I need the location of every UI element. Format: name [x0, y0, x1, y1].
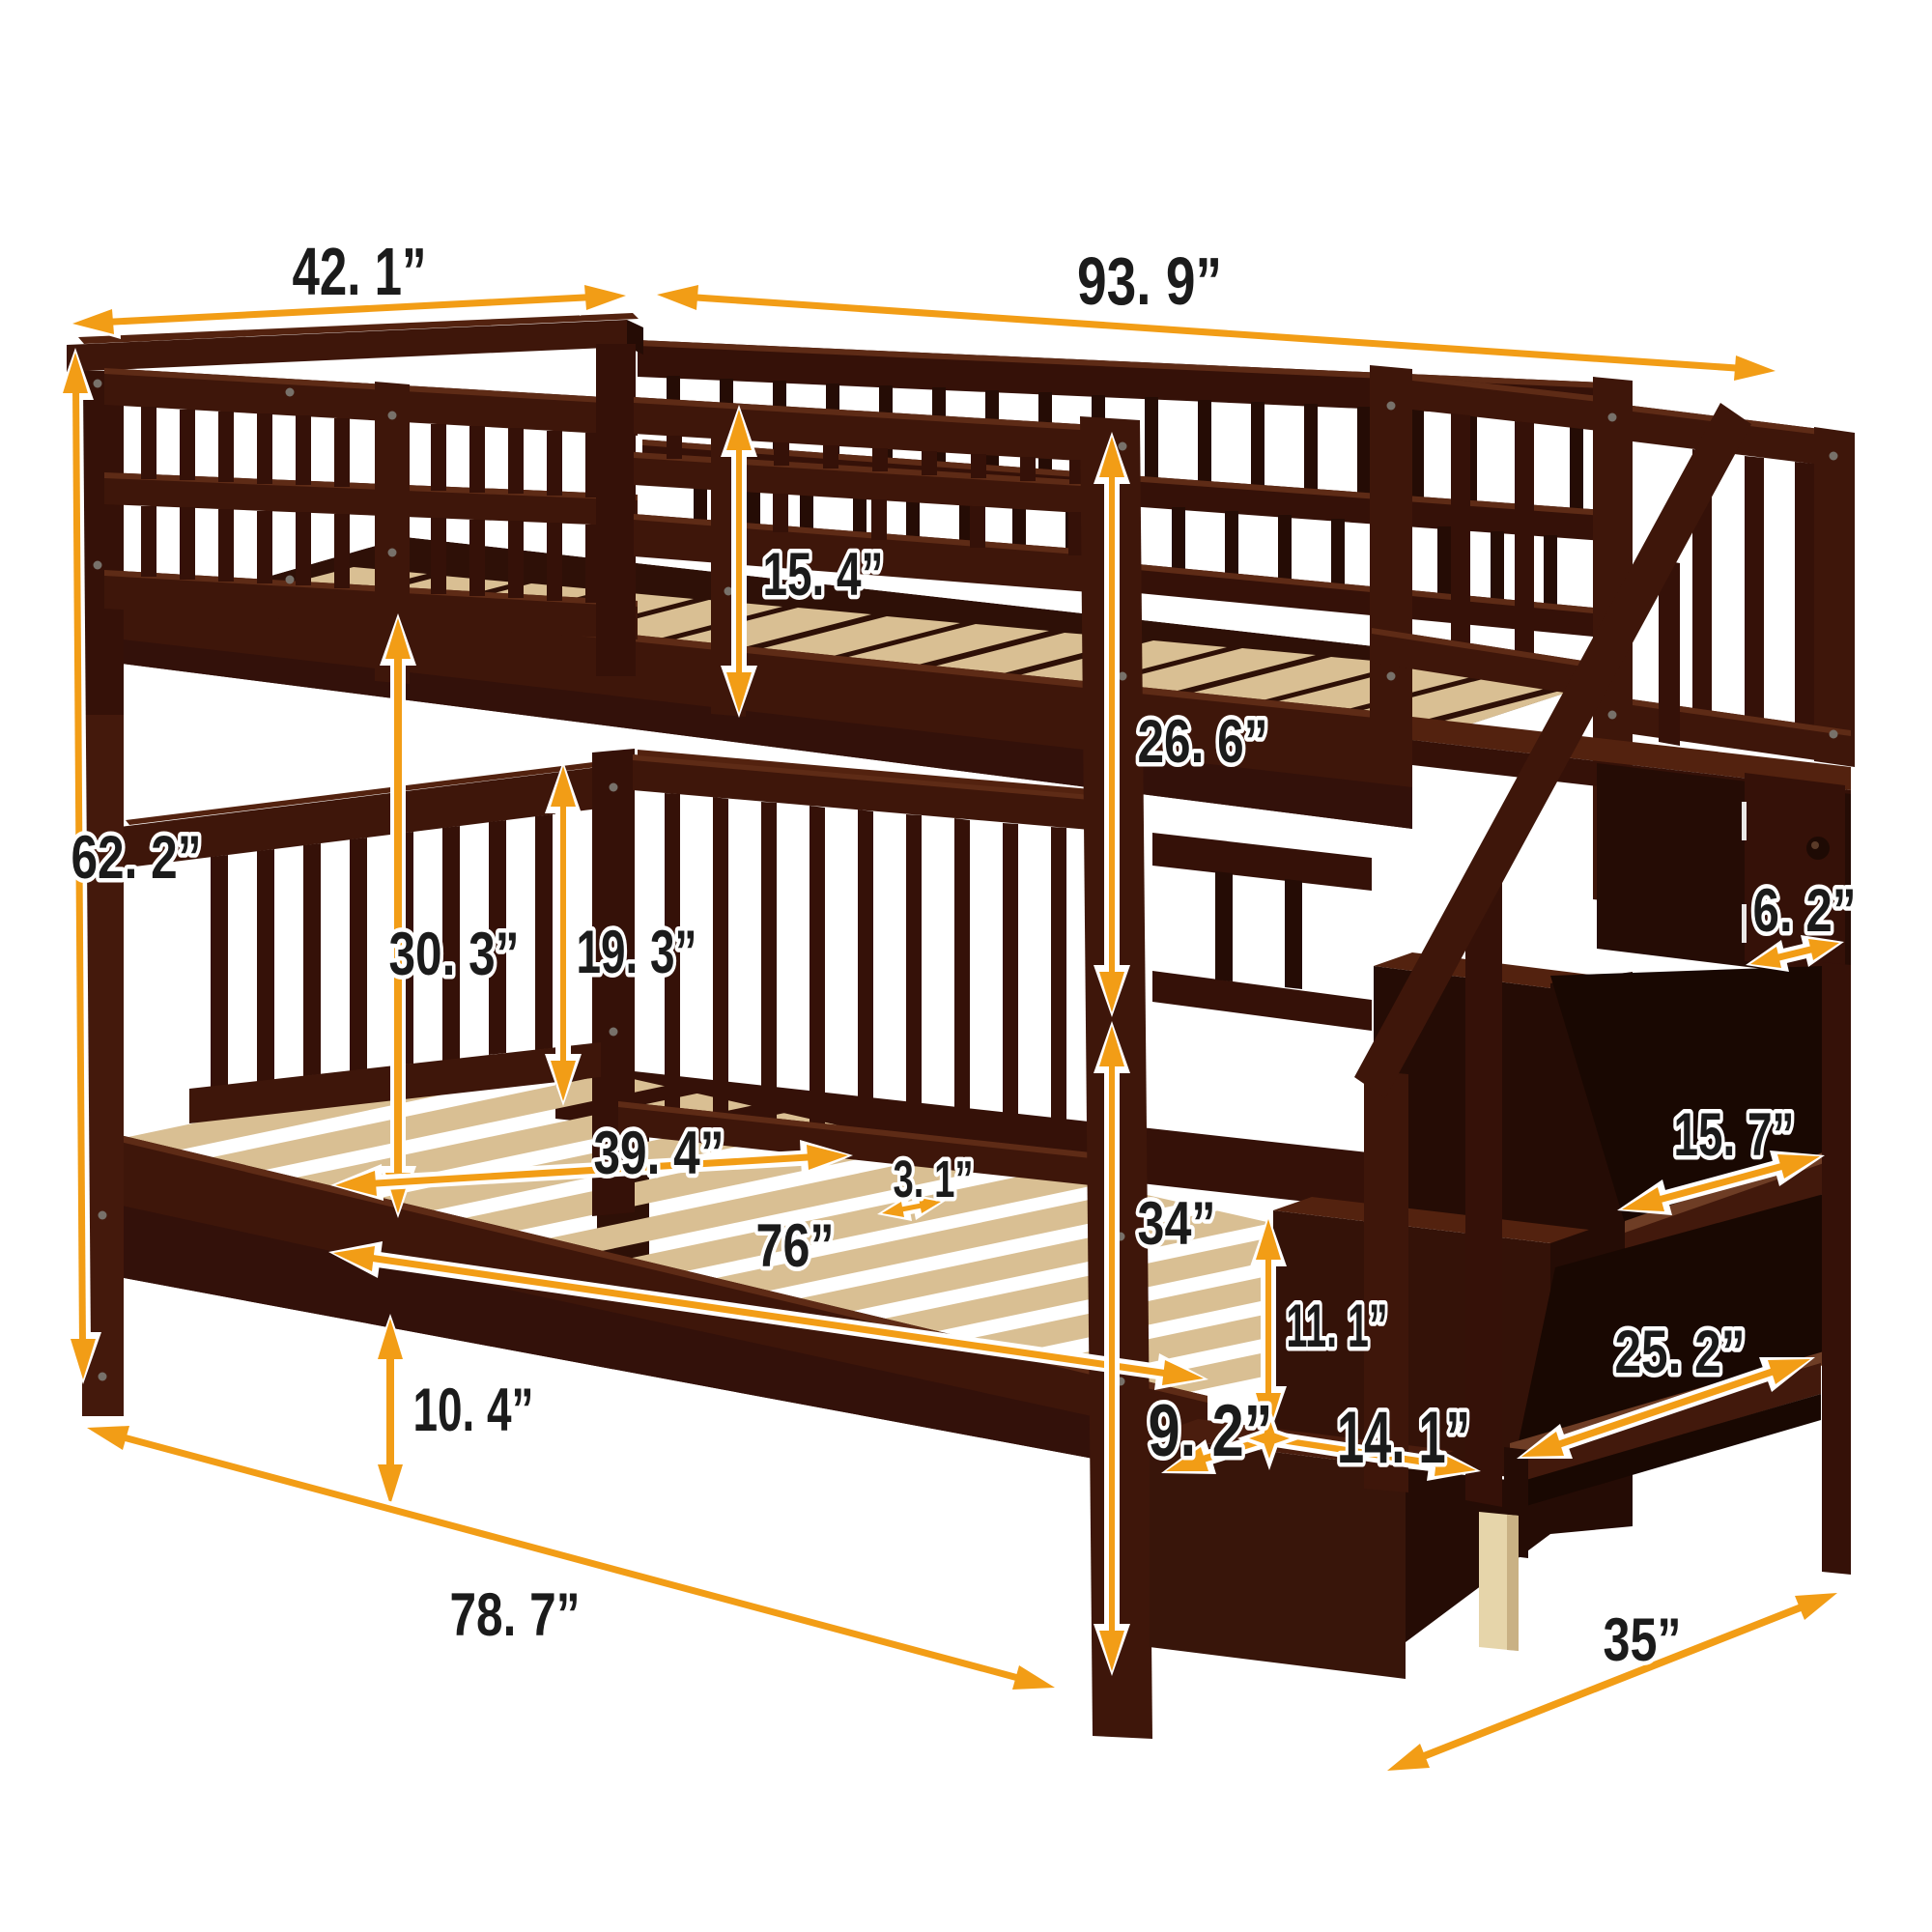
svg-text:26. 6”: 26. 6”: [1138, 708, 1268, 776]
svg-text:9. 2”: 9. 2”: [1149, 1390, 1273, 1472]
svg-text:11. 1”: 11. 1”: [1287, 1293, 1388, 1360]
svg-text:30. 3”: 30. 3”: [389, 921, 520, 988]
svg-text:15. 4”: 15. 4”: [763, 541, 884, 609]
svg-text:62. 2”: 62. 2”: [71, 824, 202, 892]
svg-text:10. 4”: 10. 4”: [413, 1377, 534, 1444]
svg-text:42. 1”: 42. 1”: [293, 234, 427, 309]
svg-text:93. 9”: 93. 9”: [1077, 243, 1222, 319]
svg-text:6. 2”: 6. 2”: [1753, 877, 1857, 945]
svg-text:3. 1”: 3. 1”: [894, 1151, 974, 1208]
svg-text:35”: 35”: [1604, 1606, 1682, 1674]
svg-text:14. 1”: 14. 1”: [1337, 1397, 1470, 1479]
svg-text:39. 4”: 39. 4”: [594, 1120, 724, 1187]
svg-text:19. 3”: 19. 3”: [577, 919, 697, 986]
svg-text:76”: 76”: [756, 1212, 835, 1280]
svg-text:78. 7”: 78. 7”: [450, 1581, 581, 1649]
svg-text:15. 7”: 15. 7”: [1674, 1101, 1795, 1169]
svg-text:25. 2”: 25. 2”: [1615, 1319, 1746, 1386]
svg-text:34”: 34”: [1138, 1190, 1216, 1258]
